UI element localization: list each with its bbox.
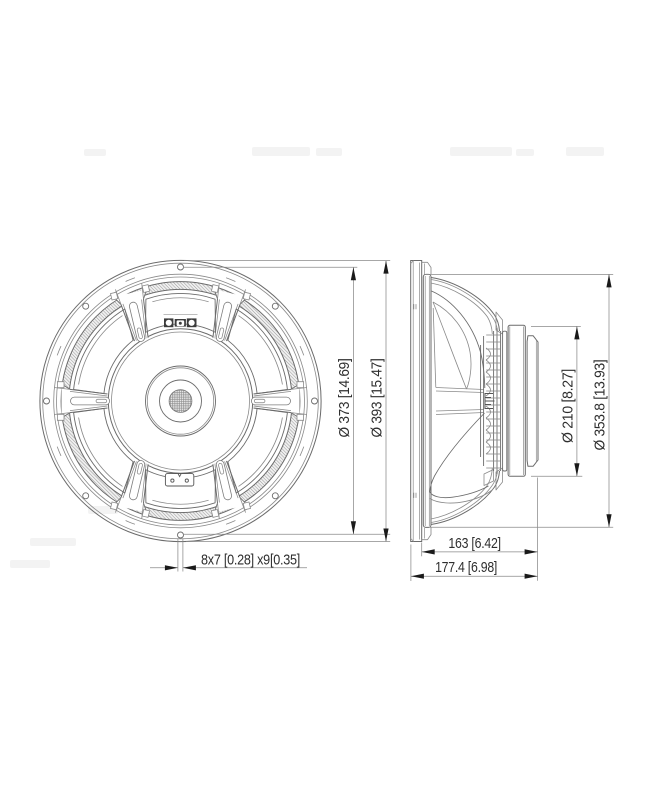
svg-text:Ø 353.8 [13.93]: Ø 353.8 [13.93] (592, 359, 609, 450)
svg-text:8x7 [0.28] x9[0.35]: 8x7 [0.28] x9[0.35] (201, 552, 300, 569)
svg-text:177.4 [6.98]: 177.4 [6.98] (435, 559, 497, 576)
svg-text:163 [6.42]: 163 [6.42] (448, 535, 501, 552)
svg-text:Ø 393 [15.47]: Ø 393 [15.47] (369, 358, 386, 437)
svg-text:Ø 210 [8.27]: Ø 210 [8.27] (559, 369, 576, 443)
svg-text:Ø 373 [14.69]: Ø 373 [14.69] (336, 358, 353, 437)
